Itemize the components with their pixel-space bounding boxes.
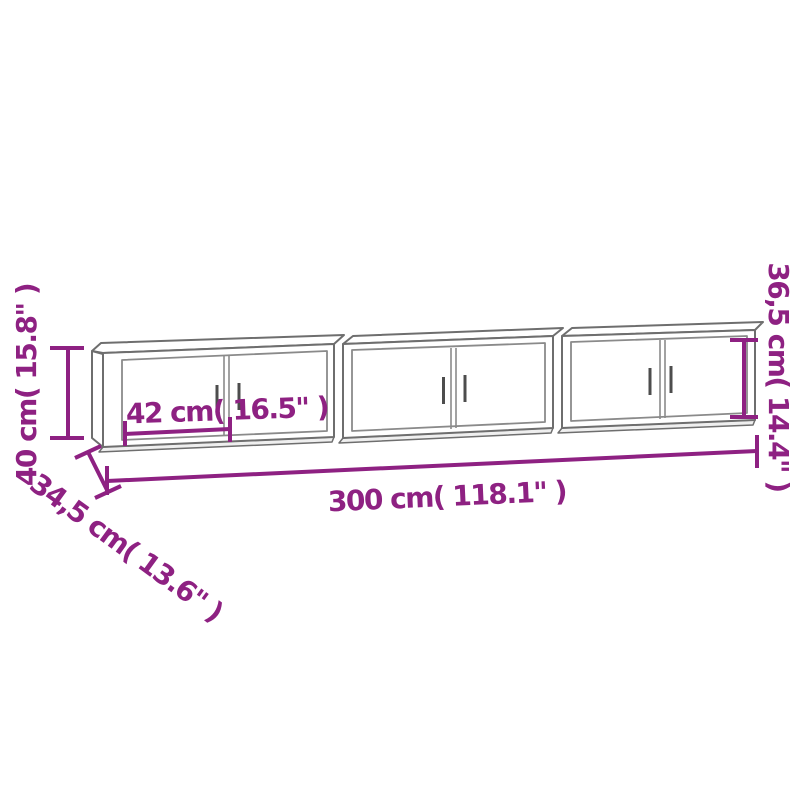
cabinet-right-doors xyxy=(571,336,747,421)
cabinet-middle xyxy=(339,328,563,443)
door-handle-icon xyxy=(464,375,467,402)
dimension-diagram: 40 cm( 15.8" ) 42 cm( 16.5" ) 300 cm( 11… xyxy=(0,0,800,800)
dimension-line-overall-height xyxy=(50,348,84,438)
dimension-label-overall-height: 40 cm( 15.8" ) xyxy=(13,284,41,486)
door-handle-icon xyxy=(649,368,652,395)
dimension-label-unit-height: 36,5 cm( 14.4" ) xyxy=(764,262,792,491)
cabinet-middle-doors xyxy=(352,343,545,431)
cabinet-left-side-panel xyxy=(92,351,103,447)
dimension-line-depth xyxy=(75,446,121,498)
door-handle-icon xyxy=(442,377,445,404)
door-handle-icon xyxy=(670,366,673,393)
furniture-line-art xyxy=(0,0,800,800)
dimension-label-door-width: 42 cm( 16.5" ) xyxy=(125,393,328,428)
